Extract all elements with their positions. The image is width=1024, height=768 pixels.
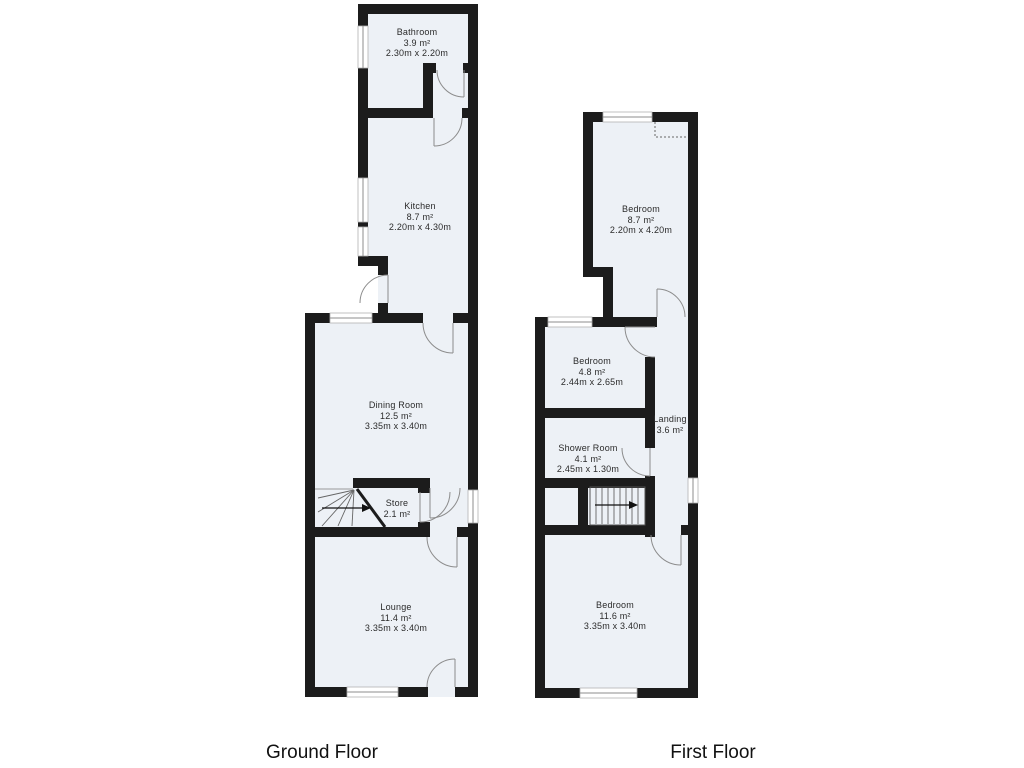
floorplan-drawing [0, 0, 1024, 768]
room-label-dining-room: Dining Room 12.5 m² 3.35m x 3.40m [341, 400, 451, 432]
room-area: 4.1 m² [533, 454, 643, 465]
room-label-kitchen: Kitchen 8.7 m² 2.20m x 4.30m [365, 201, 475, 233]
room-dims: 2.45m x 1.30m [533, 464, 643, 475]
room-dims: 2.30m x 2.20m [362, 48, 472, 59]
room-area: 3.9 m² [362, 38, 472, 49]
room-label-bathroom: Bathroom 3.9 m² 2.30m x 2.20m [362, 27, 472, 59]
room-dims: 2.20m x 4.30m [365, 222, 475, 233]
floorplan-canvas: Bathroom 3.9 m² 2.30m x 2.20m Kitchen 8.… [0, 0, 1024, 768]
room-label-landing: Landing 3.6 m² [639, 414, 701, 435]
floor-caption-first: First Floor [633, 742, 793, 764]
room-label-bedroom-3: Bedroom 11.6 m² 3.35m x 3.40m [560, 600, 670, 632]
room-label-store: Store 2.1 m² [362, 498, 432, 519]
room-name: Dining Room [341, 400, 451, 411]
room-label-bedroom-1: Bedroom 8.7 m² 2.20m x 4.20m [586, 204, 696, 236]
room-name: Store [362, 498, 432, 509]
room-area: 11.6 m² [560, 611, 670, 622]
room-dims: 3.35m x 3.40m [341, 421, 451, 432]
room-area: 2.1 m² [362, 509, 432, 520]
room-area: 8.7 m² [365, 212, 475, 223]
room-area: 4.8 m² [537, 367, 647, 378]
floor-caption-ground: Ground Floor [242, 742, 402, 764]
room-dims: 3.35m x 3.40m [560, 621, 670, 632]
room-label-shower-room: Shower Room 4.1 m² 2.45m x 1.30m [533, 443, 643, 475]
room-dims: 3.35m x 3.40m [341, 623, 451, 634]
room-area: 8.7 m² [586, 215, 696, 226]
room-area: 11.4 m² [341, 613, 451, 624]
room-name: Bathroom [362, 27, 472, 38]
room-dims: 2.44m x 2.65m [537, 377, 647, 388]
room-name: Kitchen [365, 201, 475, 212]
ground-floor-plan [305, 4, 478, 697]
room-area: 12.5 m² [341, 411, 451, 422]
room-name: Bedroom [586, 204, 696, 215]
room-area: 3.6 m² [639, 425, 701, 436]
room-label-bedroom-2: Bedroom 4.8 m² 2.44m x 2.65m [537, 356, 647, 388]
room-label-lounge: Lounge 11.4 m² 3.35m x 3.40m [341, 602, 451, 634]
room-name: Lounge [341, 602, 451, 613]
room-name: Bedroom [560, 600, 670, 611]
room-name: Landing [639, 414, 701, 425]
room-name: Bedroom [537, 356, 647, 367]
room-dims: 2.20m x 4.20m [586, 225, 696, 236]
room-name: Shower Room [533, 443, 643, 454]
